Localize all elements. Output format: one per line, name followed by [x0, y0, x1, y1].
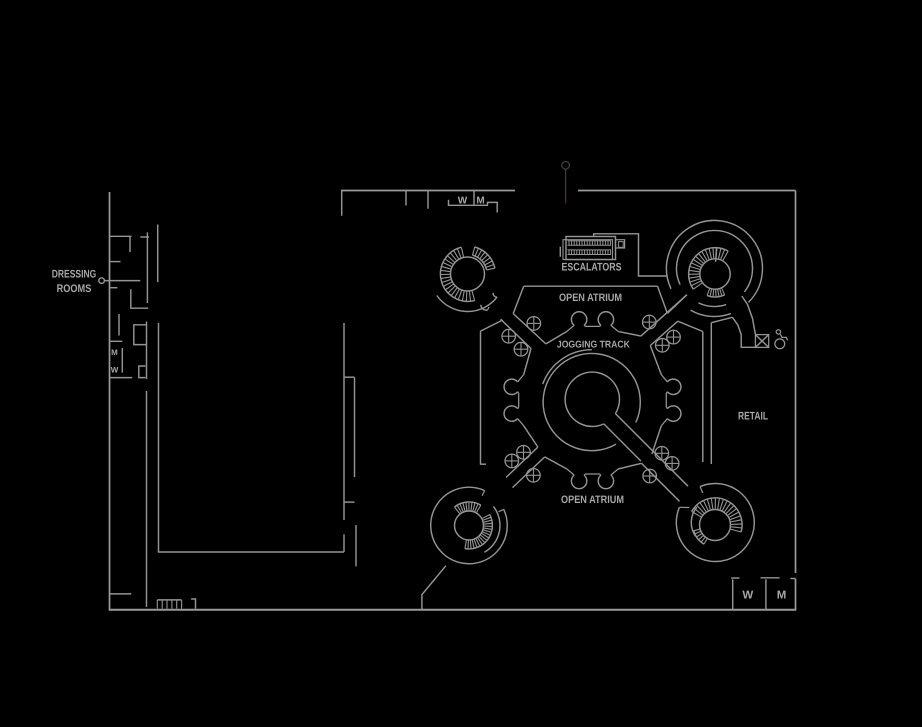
- svg-text:M: M: [111, 348, 118, 357]
- svg-text:ROOMS: ROOMS: [57, 283, 92, 295]
- svg-text:W: W: [742, 590, 753, 602]
- svg-text:JOGGING TRACK: JOGGING TRACK: [557, 340, 630, 351]
- svg-text:OPEN ATRIUM: OPEN ATRIUM: [561, 494, 624, 506]
- svg-text:OPEN ATRIUM: OPEN ATRIUM: [559, 292, 622, 304]
- svg-text:DRESSING: DRESSING: [52, 268, 97, 280]
- svg-text:W: W: [111, 366, 119, 375]
- svg-text:M: M: [777, 590, 787, 602]
- svg-text:ESCALATORS: ESCALATORS: [562, 262, 622, 274]
- svg-text:RETAIL: RETAIL: [738, 411, 768, 423]
- svg-text:W: W: [458, 195, 468, 206]
- svg-text:M: M: [476, 195, 484, 206]
